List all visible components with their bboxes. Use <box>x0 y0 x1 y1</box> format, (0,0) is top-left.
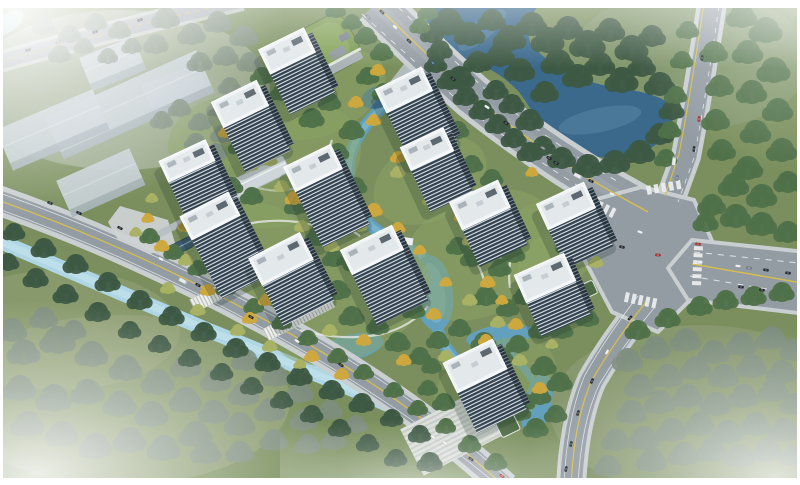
masterplan-render-canvas <box>0 0 800 485</box>
aerial-rendering <box>0 0 800 485</box>
car <box>738 285 744 288</box>
car <box>785 271 791 274</box>
haze-top-right <box>580 0 800 210</box>
haze-bottom-center <box>280 410 560 485</box>
car <box>759 288 765 291</box>
car <box>763 268 769 271</box>
car <box>735 264 741 267</box>
car <box>697 260 703 263</box>
car <box>695 242 701 245</box>
haze-top-left <box>0 0 300 230</box>
car <box>655 254 661 257</box>
car <box>746 266 752 269</box>
